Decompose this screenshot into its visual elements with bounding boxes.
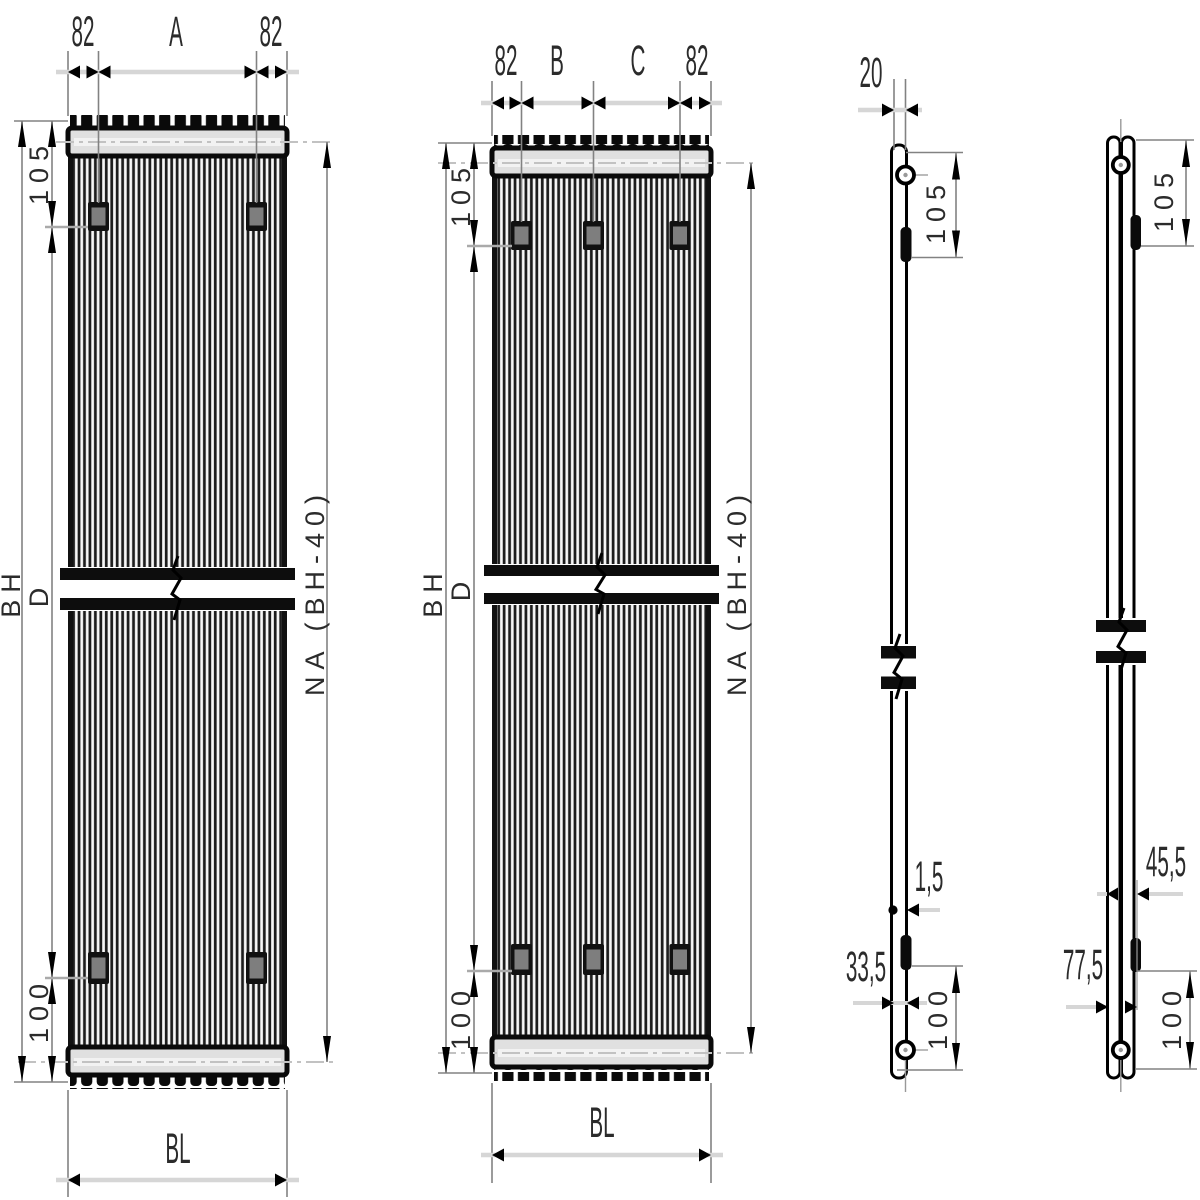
svg-text:A: A bbox=[169, 8, 183, 56]
svg-text:82: 82 bbox=[260, 8, 283, 56]
svg-text:100: 100 bbox=[24, 977, 54, 1043]
svg-text:BL: BL bbox=[589, 1099, 614, 1147]
svg-text:D: D bbox=[446, 575, 476, 602]
svg-text:82: 82 bbox=[72, 8, 95, 56]
svg-text:20: 20 bbox=[860, 49, 883, 97]
svg-text:BL: BL bbox=[165, 1125, 190, 1173]
svg-text:105: 105 bbox=[921, 178, 951, 244]
svg-text:D: D bbox=[24, 581, 54, 608]
svg-text:100: 100 bbox=[923, 984, 953, 1050]
svg-text:1,5: 1,5 bbox=[915, 853, 944, 901]
svg-text:45,5: 45,5 bbox=[1146, 838, 1186, 886]
svg-text:105: 105 bbox=[24, 139, 54, 205]
svg-text:100: 100 bbox=[446, 984, 476, 1050]
svg-text:33,5: 33,5 bbox=[846, 943, 886, 991]
svg-text:C: C bbox=[631, 37, 646, 85]
svg-text:B: B bbox=[550, 37, 564, 85]
svg-text:BH: BH bbox=[0, 566, 26, 618]
svg-text:NA (BH-40): NA (BH-40) bbox=[722, 488, 752, 696]
svg-text:NA (BH-40): NA (BH-40) bbox=[300, 488, 330, 696]
svg-text:105: 105 bbox=[446, 161, 476, 227]
svg-text:100: 100 bbox=[1157, 984, 1187, 1050]
svg-text:77,5: 77,5 bbox=[1063, 941, 1103, 989]
svg-text:105: 105 bbox=[1149, 166, 1179, 232]
svg-text:82: 82 bbox=[495, 37, 518, 85]
svg-text:82: 82 bbox=[686, 37, 709, 85]
svg-text:BH: BH bbox=[418, 566, 448, 618]
